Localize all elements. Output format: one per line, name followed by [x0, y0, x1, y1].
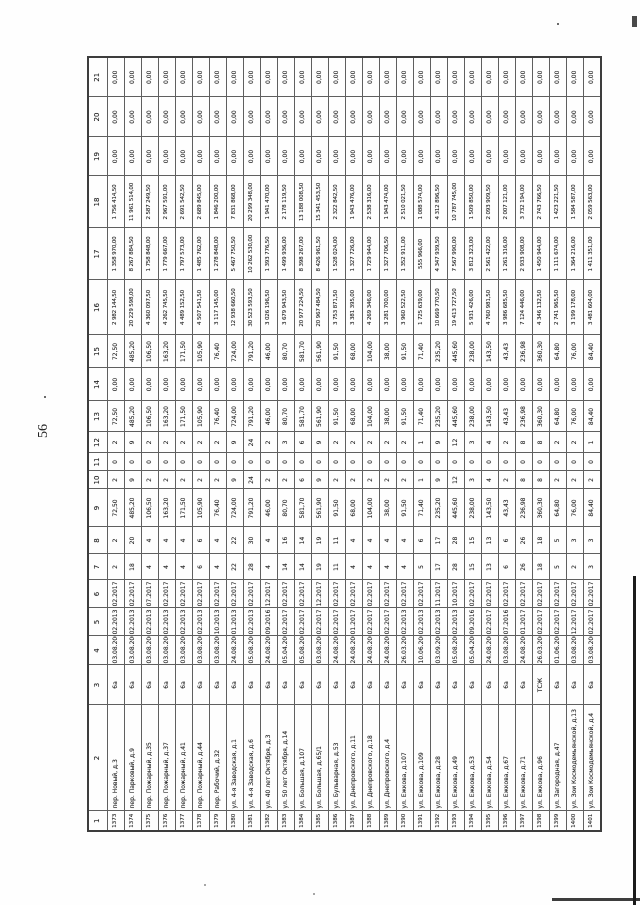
table-cell: 6 — [193, 527, 210, 554]
table-cell: 6а — [227, 665, 244, 705]
table-cell: пер. Пожарный, д.35 — [142, 705, 159, 811]
table-cell: 235,20 — [431, 489, 448, 527]
table-cell: 1394 — [465, 811, 482, 831]
table-cell: 0 — [261, 453, 278, 471]
table-cell: 24.08.2005 — [482, 636, 499, 665]
table-cell: 4 — [159, 527, 176, 554]
table-cell: 71,40 — [414, 335, 431, 368]
table-cell: 2 — [346, 471, 363, 489]
table-cell: 30 523 593,50 — [244, 280, 261, 335]
table-cell: 2 587 249,50 — [142, 176, 159, 228]
rotated-table: 123456789101112131415161718192021 1373пе… — [87, 56, 602, 832]
table-cell: 0 — [567, 453, 584, 471]
table-cell: 581,70 — [295, 401, 312, 432]
table-cell: 0,00 — [363, 97, 380, 137]
column-header: 6 — [88, 580, 108, 608]
table-cell: 2 322 842,50 — [329, 176, 346, 228]
table-cell: 0,00 — [261, 368, 278, 401]
table-cell: 0,00 — [516, 57, 533, 97]
table-cell: 8 — [516, 471, 533, 489]
table-cell: 03.08.2005 — [125, 636, 142, 665]
table-cell: 03.08.2005 — [108, 636, 125, 665]
table-cell: 72,50 — [108, 401, 125, 432]
table-cell: 4 — [142, 554, 159, 580]
table-cell: 0 — [159, 453, 176, 471]
table-cell: 4 — [261, 554, 278, 580]
column-header: 15 — [88, 335, 108, 368]
scan-edge-mark-topright — [632, 16, 637, 27]
table-cell: 05.08.2005 — [244, 636, 261, 665]
table-cell: 1 450 944,00 — [533, 228, 550, 280]
table-cell: 84,40 — [584, 401, 602, 432]
table-cell: 0,00 — [125, 57, 142, 97]
table-cell: 91,50 — [397, 335, 414, 368]
table-cell: 11.2017 — [431, 580, 448, 608]
table-cell: 71,40 — [414, 489, 431, 527]
table-cell: 02.2017 — [584, 608, 602, 636]
table-cell: 0,00 — [295, 368, 312, 401]
table-cell: 0,00 — [482, 97, 499, 137]
table-cell: 1 758 848,00 — [142, 228, 159, 280]
table-cell: 0,00 — [448, 57, 465, 97]
table-cell: 4 360 097,50 — [142, 280, 159, 335]
table-cell: 0 — [312, 453, 329, 471]
header-row: 123456789101112131415161718192021 — [88, 57, 108, 831]
table-cell: 15 341 453,50 — [312, 176, 329, 228]
table-cell: ул. 40 лет Октября, д.3 — [261, 705, 278, 811]
table-cell: 6а — [261, 665, 278, 705]
table-cell: 1 725 639,00 — [414, 280, 431, 335]
table-cell: 05.08.2005 — [295, 636, 312, 665]
table-cell: ул. Ежкова, д.96 — [533, 705, 550, 811]
table-cell: 1393 — [448, 811, 465, 831]
table-cell: 0,00 — [193, 137, 210, 176]
table-cell: 0,00 — [550, 137, 567, 176]
table-header: 123456789101112131415161718192021 — [88, 57, 108, 831]
table-cell: 26 — [516, 527, 533, 554]
table-cell: 0 — [125, 453, 142, 471]
table-cell: 64,80 — [550, 401, 567, 432]
table-cell: 1 327 706,50 — [380, 228, 397, 280]
table-cell: 46,00 — [261, 335, 278, 368]
table-cell: 0,00 — [210, 137, 227, 176]
table-cell: 0,00 — [516, 137, 533, 176]
table-cell: 05.04.2005 — [278, 636, 295, 665]
table-cell: 02.2013 — [176, 608, 193, 636]
table-row: 1376пер. Пожарный, д.376а03.08.200502.20… — [159, 57, 176, 831]
table-cell: 72,50 — [108, 489, 125, 527]
table-cell: 24.08.2005 — [329, 636, 346, 665]
table-cell: 0,00 — [210, 368, 227, 401]
table-cell: 238,00 — [465, 489, 482, 527]
table-cell: 4 — [363, 554, 380, 580]
table-cell: 0,00 — [176, 368, 193, 401]
table-cell: 0,00 — [482, 57, 499, 97]
table-cell: 0,00 — [261, 137, 278, 176]
table-cell: 0,00 — [448, 368, 465, 401]
table-row: 1375пер. Пожарный, д.356а03.08.200502.20… — [142, 57, 159, 831]
table-cell: 4 346 132,50 — [533, 280, 550, 335]
table-cell: 1 364 216,00 — [567, 228, 584, 280]
table-row: 1390ул. Ежкова, д.1076а26.03.200502.2013… — [397, 57, 414, 831]
table-cell: ул. Ежкова, д.53 — [465, 705, 482, 811]
table-row: 1382ул. 40 лет Октября, д.36а24.08.20050… — [261, 57, 278, 831]
table-cell: 236,98 — [516, 335, 533, 368]
table-cell: 0,00 — [397, 368, 414, 401]
table-cell: 02.2017 — [380, 580, 397, 608]
table-cell: 02.2017 — [499, 580, 516, 608]
table-cell: 15 — [465, 527, 482, 554]
table-cell: ул. 4-я Заводская, д.1 — [227, 705, 244, 811]
table-cell: 02.2017 — [295, 608, 312, 636]
table-cell: 2 — [363, 432, 380, 453]
table-cell: 1 509 850,00 — [465, 176, 482, 228]
table-cell: ул. Ежкова, д.49 — [448, 705, 465, 811]
table-cell: 28 — [448, 554, 465, 580]
table-cell: 1386 — [329, 811, 346, 831]
table-cell: 0,00 — [312, 137, 329, 176]
table-cell: 0,00 — [312, 97, 329, 137]
table-cell: 1380 — [227, 811, 244, 831]
table-cell: 561,90 — [312, 489, 329, 527]
table-cell: 0,00 — [516, 97, 533, 137]
table-cell: 10 262 530,00 — [244, 228, 261, 280]
table-cell: 24.08.2005 — [363, 636, 380, 665]
column-header: 2 — [88, 705, 108, 811]
table-cell: 0,00 — [584, 137, 602, 176]
table-cell: 0,00 — [567, 137, 584, 176]
table-cell: 02.2013 — [193, 608, 210, 636]
table-cell: 3 281 700,00 — [380, 280, 397, 335]
table-cell: 02.2017 — [584, 580, 602, 608]
table-cell: 1 393 776,50 — [261, 228, 278, 280]
table-cell: 02.2017 — [550, 608, 567, 636]
table-cell: 1399 — [550, 811, 567, 831]
table-cell: 0,00 — [329, 97, 346, 137]
table-cell: 02.2017 — [363, 580, 380, 608]
table-cell: 18 — [533, 554, 550, 580]
table-cell: 0,00 — [550, 57, 567, 97]
table-cell: 10.2013 — [210, 608, 227, 636]
scan-dot — [557, 23, 559, 25]
table-cell: 03.08.2005 — [159, 636, 176, 665]
table-cell: 0,00 — [397, 57, 414, 97]
column-header: 8 — [88, 527, 108, 554]
table-cell: 2 — [261, 432, 278, 453]
table-cell: 163,20 — [159, 401, 176, 432]
page-number: 56 — [36, 418, 62, 444]
table-cell: ул. Ежкова, д.107 — [397, 705, 414, 811]
table-cell: 0,00 — [567, 368, 584, 401]
table-cell: 6а — [193, 665, 210, 705]
table-cell: 143,50 — [482, 335, 499, 368]
table-cell: 238,00 — [465, 335, 482, 368]
table-cell: 0,00 — [193, 57, 210, 97]
table-cell: 485,20 — [125, 335, 142, 368]
table-cell: 0,00 — [278, 137, 295, 176]
table-cell: 0,00 — [431, 57, 448, 97]
table-cell: 02.2013 — [448, 608, 465, 636]
table-cell: 91,50 — [397, 401, 414, 432]
table-cell: 03.08.2005 — [142, 636, 159, 665]
table-cell: 3 812 323,00 — [465, 228, 482, 280]
table-cell: 0,00 — [261, 97, 278, 137]
table-cell: 03.08.2004 — [567, 636, 584, 665]
table-cell: 76,00 — [567, 489, 584, 527]
table-cell: 6 — [499, 527, 516, 554]
table-cell: 2 — [550, 432, 567, 453]
table-cell: 24.08.2005 — [346, 636, 363, 665]
table-cell: 6а — [431, 665, 448, 705]
table-cell: 0 — [482, 453, 499, 471]
table-cell: 6 — [295, 471, 312, 489]
table-cell: 0,00 — [431, 368, 448, 401]
table-cell: 02.2013 — [159, 608, 176, 636]
table-row: 1401ул. Зои Космодемьянской, д.46а03.08.… — [584, 57, 602, 831]
table-cell: 1 278 848,00 — [210, 228, 227, 280]
table-cell: 84,40 — [584, 489, 602, 527]
table-cell: 02.2017 — [414, 580, 431, 608]
table-cell: 5 931 426,00 — [465, 280, 482, 335]
table-cell: 6 — [414, 527, 431, 554]
table-cell: 0,00 — [244, 137, 261, 176]
table-cell: 2 — [550, 471, 567, 489]
table-cell: 22 — [227, 554, 244, 580]
table-cell: 0,00 — [346, 368, 363, 401]
table-cell: 07.2016 — [499, 608, 516, 636]
table-cell: 02.2017 — [159, 580, 176, 608]
table-cell: 3 — [465, 471, 482, 489]
table-cell: 0,00 — [397, 137, 414, 176]
table-cell: 1 729 944,00 — [363, 228, 380, 280]
table-cell: 0 — [363, 453, 380, 471]
table-cell: 4 312 896,50 — [431, 176, 448, 228]
table-cell: 0 — [397, 453, 414, 471]
table-cell: 24 — [244, 471, 261, 489]
table-cell: 581,70 — [295, 489, 312, 527]
table-cell: 0,00 — [108, 57, 125, 97]
table-cell: 02.2017 — [125, 580, 142, 608]
table-cell: 0 — [210, 453, 227, 471]
table-cell: 01.2013 — [227, 608, 244, 636]
table-cell: 02.2017 — [193, 580, 210, 608]
table-cell: 3 — [584, 554, 602, 580]
table-cell: 12 — [448, 471, 465, 489]
table-cell: ул. 50 лет Октября, д.14 — [278, 705, 295, 811]
table-cell: 3 199 178,00 — [567, 280, 584, 335]
table-cell: пер. Пожарный, д.44 — [193, 705, 210, 811]
table-cell: 2 741 965,50 — [550, 280, 567, 335]
table-row: 1387ул. Днепровского, д.116а24.08.200501… — [346, 57, 363, 831]
table-cell: 2 — [397, 432, 414, 453]
table-cell: 76,40 — [210, 335, 227, 368]
table-cell: 19 — [312, 527, 329, 554]
table-cell: 235,20 — [431, 401, 448, 432]
table-cell: 6а — [312, 665, 329, 705]
table-cell: 2 561 422,00 — [482, 228, 499, 280]
table-cell: 0 — [414, 453, 431, 471]
table-cell: 1 779 667,00 — [159, 228, 176, 280]
table-cell: 0,00 — [397, 97, 414, 137]
table-cell: 6а — [397, 665, 414, 705]
table-cell: 09.2016 — [465, 608, 482, 636]
table-cell: 0,00 — [550, 368, 567, 401]
column-header: 4 — [88, 636, 108, 665]
table-cell: 12.2017 — [567, 608, 584, 636]
column-header: 10 — [88, 471, 108, 489]
table-cell: ул. Зои Космодемьянской, д.4 — [584, 705, 602, 811]
table-cell: 12 938 660,50 — [227, 280, 244, 335]
table-cell: 10 787 745,00 — [448, 176, 465, 228]
table-cell: 80,70 — [278, 489, 295, 527]
table-cell: 0 — [448, 453, 465, 471]
table-cell: 6а — [516, 665, 533, 705]
table-cell: 1 — [414, 471, 431, 489]
table-cell: 791,20 — [244, 401, 261, 432]
table-cell: 68,00 — [346, 489, 363, 527]
table-cell: 9 — [312, 432, 329, 453]
table-cell: 1392 — [431, 811, 448, 831]
table-cell: 8 — [516, 432, 533, 453]
table-cell: пер. Парковый, д.9 — [125, 705, 142, 811]
table-cell: 02.2017 — [329, 580, 346, 608]
scan-dot — [44, 396, 46, 398]
scanned-page: 56 123456789101112131415161718192021 137… — [0, 0, 640, 905]
table-row: 1380ул. 4-я Заводская, д.16а24.08.200501… — [227, 57, 244, 831]
table-cell: 2 510 021,50 — [397, 176, 414, 228]
table-cell: 02.2017 — [312, 608, 329, 636]
table-cell: 2 — [567, 554, 584, 580]
table-cell: 3 — [465, 432, 482, 453]
table-cell: 0 — [227, 453, 244, 471]
table-cell: 6а — [295, 665, 312, 705]
table-cell: 0,00 — [346, 57, 363, 97]
table-cell: 2 743 766,50 — [533, 176, 550, 228]
table-cell: 3 986 685,50 — [499, 280, 516, 335]
table-cell: 6 — [499, 554, 516, 580]
table-cell: 4 760 981,50 — [482, 280, 499, 335]
table-cell: 0 — [278, 453, 295, 471]
table-cell: 1379 — [210, 811, 227, 831]
table-cell: 12.2017 — [312, 580, 329, 608]
table-cell: 12.2017 — [261, 580, 278, 608]
table-cell: 05.08.2005 — [448, 636, 465, 665]
table-cell: 24.08.2005 — [516, 636, 533, 665]
table-cell: 0,00 — [584, 57, 602, 97]
table-cell: 03.08.2005 — [584, 636, 602, 665]
table-cell: 02.2017 — [210, 580, 227, 608]
table-cell: 14 — [278, 554, 295, 580]
table-cell: 76,40 — [210, 489, 227, 527]
table-cell: 8 426 961,50 — [312, 228, 329, 280]
table-cell: 0,00 — [278, 368, 295, 401]
table-cell: 2 007 121,00 — [499, 176, 516, 228]
table-cell: 0,00 — [176, 57, 193, 97]
table-cell: 30 — [244, 527, 261, 554]
table-cell: 0 — [108, 453, 125, 471]
table-cell: 17 — [431, 554, 448, 580]
table-row: 1374пер. Парковый, д.96а03.08.200502.201… — [125, 57, 142, 831]
table-cell: 03.09.2005 — [431, 636, 448, 665]
table-cell: 235,20 — [431, 335, 448, 368]
table-cell: 6а — [567, 665, 584, 705]
table-cell: 171,50 — [176, 401, 193, 432]
table-row: 1378пер. Пожарный, д.446а03.08.200502.20… — [193, 57, 210, 831]
table-cell: 0,00 — [465, 368, 482, 401]
table-cell: 64,80 — [550, 335, 567, 368]
table-cell: 0,00 — [380, 368, 397, 401]
table-cell: 1 261 316,00 — [499, 228, 516, 280]
table-cell: 0,00 — [159, 137, 176, 176]
table-cell: 8 267 884,50 — [125, 228, 142, 280]
table-cell: 143,50 — [482, 401, 499, 432]
scan-dot — [313, 893, 315, 895]
table-cell: 02.2017 — [482, 580, 499, 608]
table-cell: 1 485 762,00 — [193, 228, 210, 280]
table-cell: 02.2017 — [278, 580, 295, 608]
table-cell: 0 — [465, 453, 482, 471]
table-cell: 555 966,00 — [414, 228, 431, 280]
table-cell: 1383 — [278, 811, 295, 831]
table-cell: 02.2017 — [278, 608, 295, 636]
table-cell: 0,00 — [125, 137, 142, 176]
table-cell: 2 — [499, 471, 516, 489]
table-cell: 485,20 — [125, 401, 142, 432]
table-cell: 02.2013 — [414, 608, 431, 636]
table-cell: 4 269 346,00 — [363, 280, 380, 335]
table-cell: 76,40 — [210, 401, 227, 432]
table-cell: 105,90 — [193, 335, 210, 368]
table-cell: 1378 — [193, 811, 210, 831]
table-cell: 2 — [329, 471, 346, 489]
table-cell: 4 — [142, 527, 159, 554]
table-cell: 724,00 — [227, 335, 244, 368]
table-cell: 2 — [142, 432, 159, 453]
table-cell: 9 — [227, 471, 244, 489]
table-cell: 02.2017 — [244, 580, 261, 608]
table-cell: 0,00 — [448, 137, 465, 176]
table-cell: 4 507 541,50 — [193, 280, 210, 335]
table-cell: 6а — [584, 665, 602, 705]
table-cell: 360,30 — [533, 335, 550, 368]
table-cell: 26.03.2005 — [397, 636, 414, 665]
table-cell: 10.06.2005 — [414, 636, 431, 665]
table-row: 1400ул. Зои Космодемьянской, д.136а03.08… — [567, 57, 584, 831]
table-cell: 0,00 — [261, 57, 278, 97]
table-row: 1399ул. Загородная, д.476а01.06.200502.2… — [550, 57, 567, 831]
table-cell: 20 299 348,00 — [244, 176, 261, 228]
table-cell: 0,00 — [482, 137, 499, 176]
table-cell: ТСЖ — [533, 665, 550, 705]
table-cell: 0,00 — [278, 57, 295, 97]
table-cell: 0,00 — [193, 368, 210, 401]
table-cell: ул. 4-я Заводская, д.6 — [244, 705, 261, 811]
table-row: 1383ул. 50 лет Октября, д.146а05.04.2005… — [278, 57, 295, 831]
table-cell: 11 — [329, 527, 346, 554]
table-cell: 12 — [448, 432, 465, 453]
table-cell: 0,00 — [227, 57, 244, 97]
table-cell: 4 — [363, 527, 380, 554]
table-cell: 9 — [312, 471, 329, 489]
table-cell: 28 — [448, 527, 465, 554]
table-cell: 6а — [499, 665, 516, 705]
column-header: 18 — [88, 176, 108, 228]
table-cell: 2 — [261, 471, 278, 489]
table-cell: 02.2017 — [397, 580, 414, 608]
table-cell: 238,00 — [465, 401, 482, 432]
table-cell: 0 — [516, 453, 533, 471]
table-cell: 8 — [533, 432, 550, 453]
